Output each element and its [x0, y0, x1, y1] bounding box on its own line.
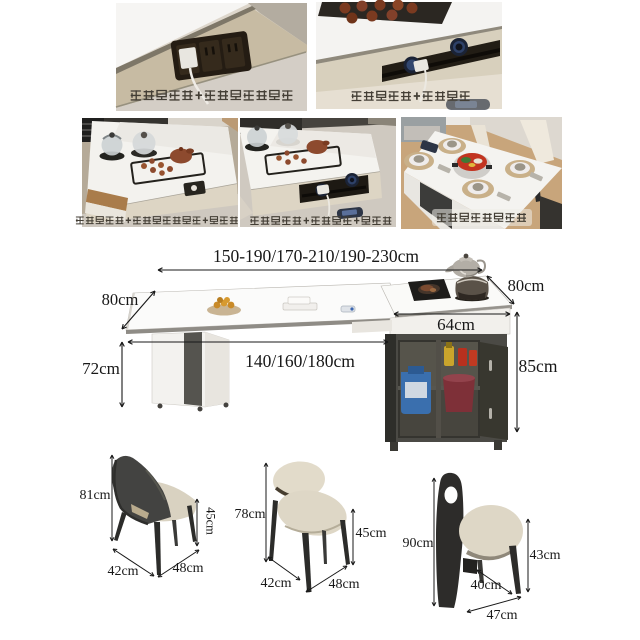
- svg-text:42cm: 42cm: [260, 576, 291, 591]
- svg-text:140/160/180cm: 140/160/180cm: [245, 351, 355, 371]
- svg-text:80cm: 80cm: [102, 290, 139, 309]
- svg-text:85cm: 85cm: [519, 356, 558, 376]
- svg-text:81cm: 81cm: [79, 488, 110, 503]
- svg-text:45cm: 45cm: [204, 507, 218, 535]
- svg-text:40cm: 40cm: [470, 578, 501, 593]
- svg-text:80cm: 80cm: [508, 276, 545, 295]
- svg-text:47cm: 47cm: [486, 608, 517, 623]
- svg-text:64cm: 64cm: [437, 315, 475, 334]
- svg-text:72cm: 72cm: [82, 359, 120, 378]
- svg-text:43cm: 43cm: [529, 548, 560, 563]
- svg-text:48cm: 48cm: [172, 561, 203, 576]
- svg-text:78cm: 78cm: [234, 507, 265, 522]
- svg-text:45cm: 45cm: [355, 526, 386, 541]
- svg-text:90cm: 90cm: [402, 536, 433, 551]
- svg-text:42cm: 42cm: [107, 564, 138, 579]
- svg-text:48cm: 48cm: [328, 577, 359, 592]
- svg-text:150-190/170-210/190-230cm: 150-190/170-210/190-230cm: [213, 246, 419, 266]
